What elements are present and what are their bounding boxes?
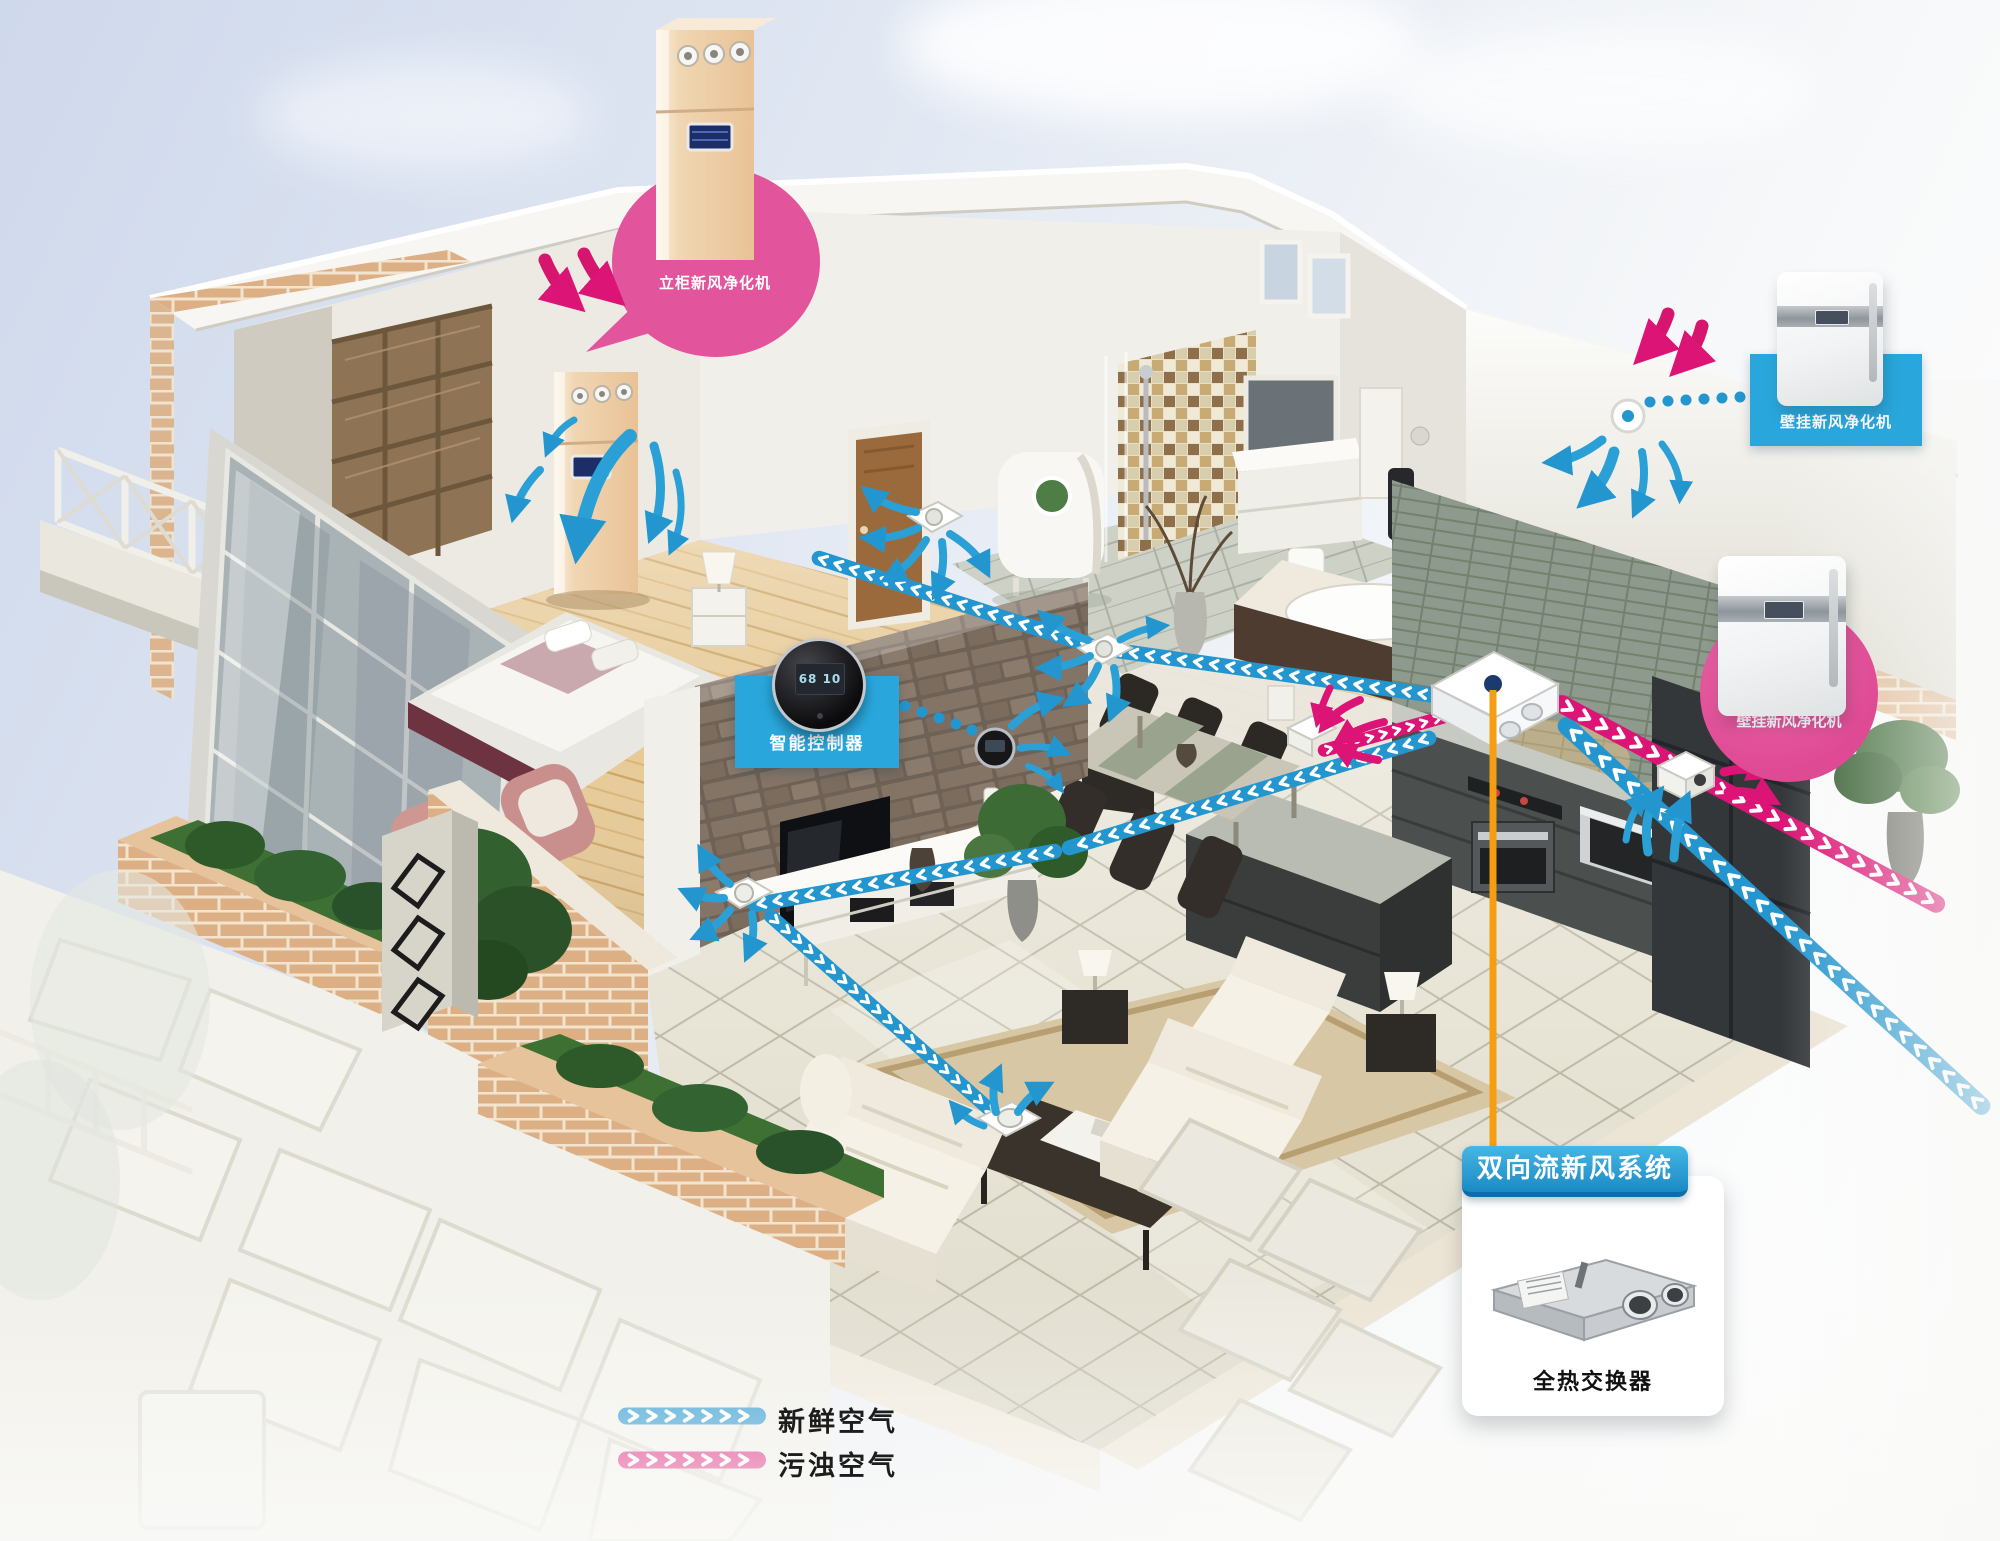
scene: 立柜新风净化机 智能控制器 68 10 壁挂新风净化机 壁挂新风净化机 — [0, 0, 2000, 1541]
floor-unit-label: 立柜新风净化机 — [650, 272, 780, 293]
legend-fresh-band — [618, 1408, 766, 1425]
wall-unit-side-slot — [1869, 283, 1876, 382]
light-switch — [1268, 686, 1294, 720]
pillar — [382, 810, 478, 1032]
heat-exchanger-caption: 全热交换器 — [1462, 1364, 1724, 1396]
wall-controller — [976, 729, 1014, 767]
wall-round-vent — [1612, 400, 1644, 432]
system-card: 全热交换器 双向流新风系统 — [1462, 1146, 1724, 1416]
cut-wall — [644, 686, 700, 978]
wall-unit-top-label: 壁挂新风净化机 — [1750, 411, 1922, 432]
controller-label: 智能控制器 — [735, 729, 899, 754]
smart-controller-device[interactable]: 68 10 — [772, 638, 866, 732]
outdoor-unit — [140, 1392, 264, 1528]
wall-unit-top-device — [1777, 272, 1883, 406]
bathroom-window — [1262, 242, 1300, 302]
system-card-title: 双向流新风系统 — [1462, 1146, 1688, 1197]
legend-dirty-label: 污浊空气 — [778, 1444, 898, 1483]
bathroom-window — [1310, 256, 1348, 316]
wall-lamp — [1411, 427, 1429, 445]
legend-fresh-label: 新鲜空气 — [778, 1400, 898, 1439]
wall-unit-kitchen-device — [1718, 556, 1846, 716]
controller-button[interactable] — [817, 713, 823, 719]
wall-unit-side-slot — [1829, 569, 1838, 687]
wall-unit-display — [1815, 310, 1849, 325]
controller-display: 68 10 — [795, 663, 845, 695]
heat-exchanger-image — [1482, 1250, 1704, 1360]
wall-unit-display — [1764, 601, 1804, 619]
system-card-body: 全热交换器 — [1462, 1176, 1724, 1416]
vanity — [1232, 378, 1402, 554]
legend-dirty-band — [618, 1452, 766, 1469]
